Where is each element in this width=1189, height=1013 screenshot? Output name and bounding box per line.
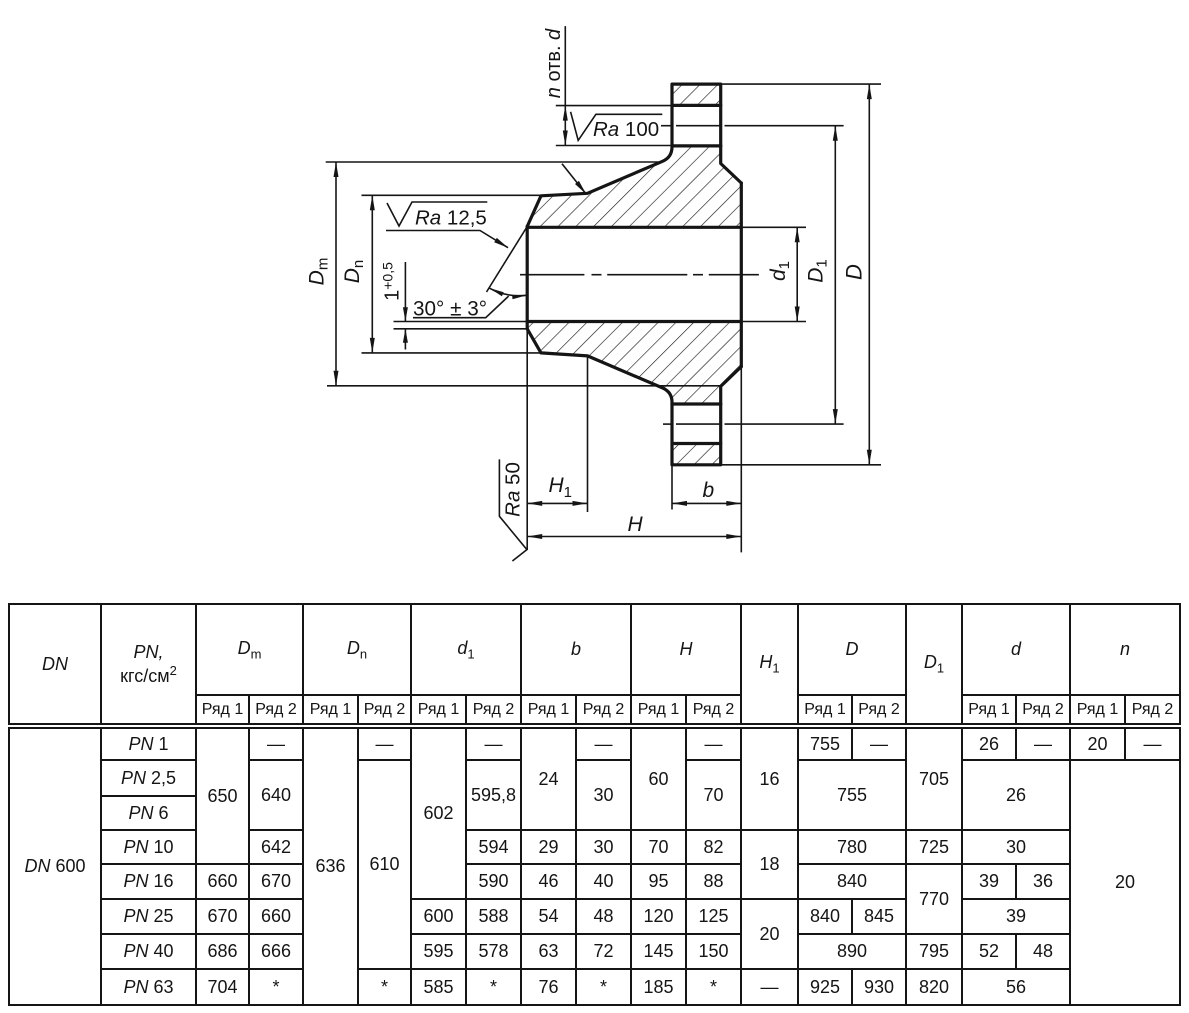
svg-text:H1: H1	[549, 474, 573, 501]
svg-text:n отв. d: n отв. d	[543, 28, 565, 98]
svg-text:Ra 12,5: Ra 12,5	[415, 207, 487, 230]
svg-text:1+0,5: 1+0,5	[380, 262, 404, 301]
svg-text:D: D	[842, 264, 867, 280]
svg-text:Dn: Dn	[341, 260, 367, 284]
svg-text:b: b	[703, 479, 715, 502]
svg-text:Ra 50: Ra 50	[502, 462, 525, 517]
svg-text:D1: D1	[805, 259, 831, 283]
svg-text:Dm: Dm	[306, 258, 332, 286]
svg-text:30° ± 3°: 30° ± 3°	[413, 298, 487, 321]
svg-text:d1: d1	[767, 261, 793, 281]
svg-text:H: H	[628, 513, 644, 536]
svg-text:Ra 100: Ra 100	[593, 118, 659, 141]
